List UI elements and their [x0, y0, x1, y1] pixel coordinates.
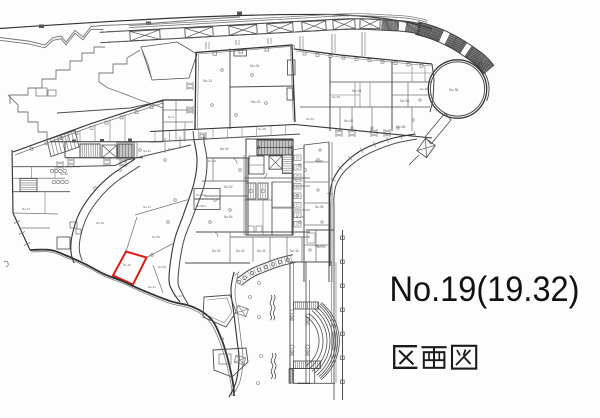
svg-text:No.19(19.32): No.19(19.32) — [390, 270, 580, 309]
svg-text:No.54: No.54 — [224, 215, 233, 219]
svg-text:No.12: No.12 — [174, 294, 182, 298]
svg-text:No.40: No.40 — [315, 159, 323, 163]
svg-text:No.44: No.44 — [257, 249, 266, 253]
svg-text:No.17: No.17 — [143, 205, 151, 209]
svg-text:No.50: No.50 — [220, 147, 229, 151]
svg-text:No.49: No.49 — [208, 159, 216, 163]
svg-text:No.28: No.28 — [258, 127, 266, 131]
svg-text:No.46: No.46 — [290, 249, 299, 253]
svg-text:No.31: No.31 — [203, 79, 212, 83]
svg-text:No.56: No.56 — [315, 205, 324, 209]
svg-text:No.56: No.56 — [158, 265, 166, 269]
svg-text:No.35: No.35 — [332, 95, 340, 99]
svg-text:No.58-1: No.58-1 — [196, 193, 206, 197]
svg-text:No.19: No.19 — [123, 263, 131, 267]
svg-text:No.42: No.42 — [236, 249, 245, 253]
svg-text:No.3: No.3 — [168, 147, 174, 151]
svg-text:No.77: No.77 — [22, 207, 30, 211]
svg-text:No.35: No.35 — [449, 88, 458, 92]
svg-text:No.20: No.20 — [296, 215, 304, 219]
svg-text:No.58-2: No.58-2 — [196, 204, 206, 208]
svg-text:No.34: No.34 — [352, 89, 361, 93]
svg-text:No.11: No.11 — [148, 285, 156, 289]
svg-text:No.60: No.60 — [344, 119, 353, 123]
svg-text:No.52: No.52 — [224, 185, 233, 189]
svg-text:No.53: No.53 — [212, 249, 221, 253]
svg-text:No.36: No.36 — [400, 99, 409, 103]
svg-text:No.55: No.55 — [152, 235, 160, 239]
svg-text:No.51: No.51 — [143, 149, 151, 153]
svg-text:No.43: No.43 — [317, 245, 326, 249]
svg-text:No.1: No.1 — [168, 115, 175, 119]
svg-text:No.34: No.34 — [250, 64, 259, 68]
svg-text:No.16: No.16 — [96, 221, 104, 225]
svg-text:No.33: No.33 — [251, 100, 260, 104]
svg-text:No.66: No.66 — [60, 172, 68, 176]
svg-text:No.38: No.38 — [420, 87, 428, 91]
svg-text:No.62: No.62 — [306, 117, 314, 121]
